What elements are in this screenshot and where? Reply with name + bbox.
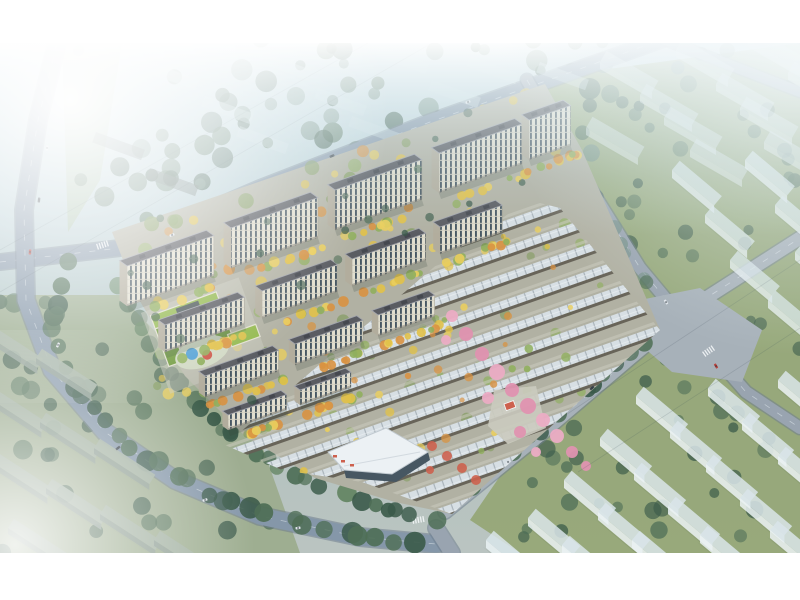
southwest-haze xyxy=(0,330,300,553)
content xyxy=(0,21,800,593)
aerial-site-rendering xyxy=(0,0,800,600)
letterbox-bottom xyxy=(0,553,800,600)
letterbox-top xyxy=(0,0,800,43)
rendering-viewport xyxy=(0,0,800,600)
haze-overlays xyxy=(0,43,800,553)
northeast-haze xyxy=(480,43,800,373)
